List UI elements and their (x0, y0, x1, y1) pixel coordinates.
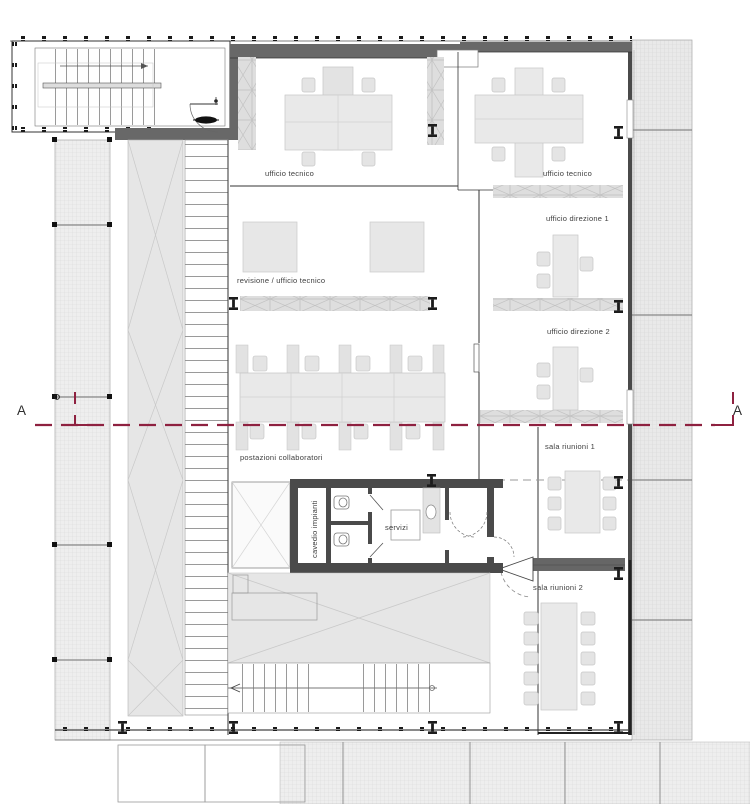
direzione-2-furniture (537, 347, 593, 410)
washbasin-icon (426, 505, 436, 519)
room-label-sala-riunioni-2: sala riunioni 2 (533, 584, 583, 592)
void-skylight-strip (128, 140, 183, 716)
room-label-revisione: revisione / ufficio tecnico (237, 277, 325, 285)
room-label-sala-riunioni-1: sala riunioni 1 (545, 443, 595, 451)
top-facade-line (10, 36, 632, 41)
room-label-ufficio-direzione-1: ufficio direzione 1 (546, 215, 609, 223)
section-mark-right: A (733, 404, 742, 418)
core-side-skylight (232, 482, 290, 568)
direzione-1-furniture (537, 235, 593, 297)
bottom-ground-hatch (118, 742, 750, 804)
room-label-postazioni: postazioni collaboratori (240, 454, 323, 462)
room-label-ufficio-direzione-2: ufficio direzione 2 (547, 328, 610, 336)
floor-plan-drawing (0, 0, 750, 804)
left-terrace-grating (52, 137, 112, 740)
office-desks-top-left (285, 67, 392, 166)
floor-plan-page: ufficio tecnico ufficio tecnico ufficio … (0, 0, 750, 804)
long-ramp-stair (185, 140, 228, 715)
double-height-void (228, 573, 490, 663)
room-label-servizi: servizi (385, 524, 408, 532)
office-desks-top-right (475, 68, 583, 177)
section-mark-left: A (17, 404, 26, 418)
room-label-ufficio-tecnico-right: ufficio tecnico (543, 170, 592, 178)
right-terrace-grating (632, 40, 692, 740)
meeting-room-2-furniture (524, 603, 595, 710)
meeting-room-1-furniture (548, 471, 616, 533)
workstation-bench (236, 345, 445, 450)
revisione-tables (243, 222, 424, 272)
room-label-ufficio-tecnico-left: ufficio tecnico (265, 170, 314, 178)
main-staircase (228, 663, 490, 713)
room-label-cavedio-impianti: cavedio impianti (311, 500, 319, 558)
